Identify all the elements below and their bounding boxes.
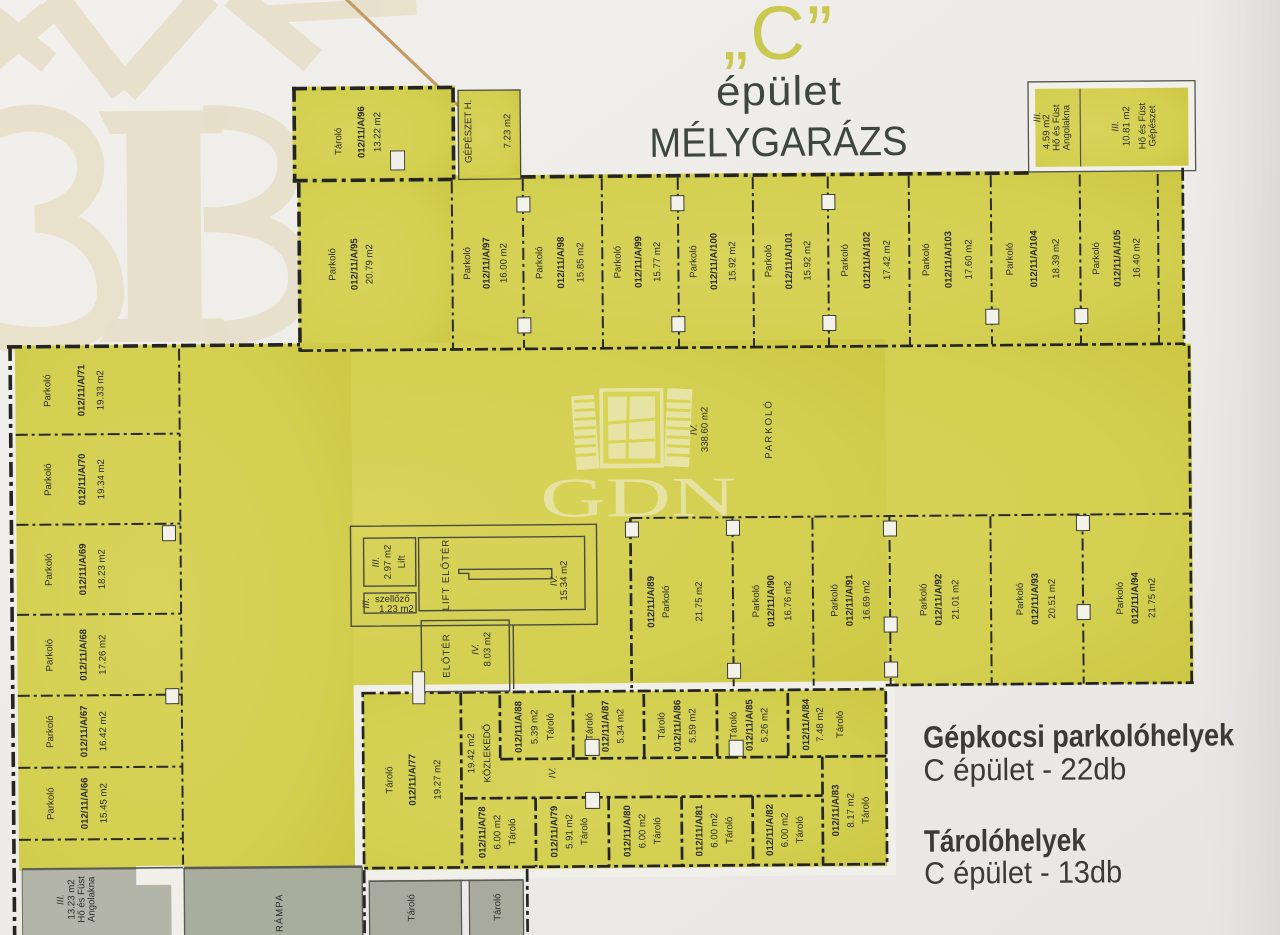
svg-text:18.39 m2: 18.39 m2 xyxy=(1051,239,1062,279)
svg-text:012/11/A/67: 012/11/A/67 xyxy=(79,705,90,757)
svg-text:LIFT ELŐTÉR: LIFT ELŐTÉR xyxy=(441,539,453,611)
svg-text:5.91 m2: 5.91 m2 xyxy=(564,814,575,849)
svg-text:19.42 m2: 19.42 m2 xyxy=(466,733,477,773)
svg-text:012/11/A/103: 012/11/A/103 xyxy=(943,231,954,288)
svg-text:15.34 m2: 15.34 m2 xyxy=(559,561,570,601)
svg-text:21.75 m2: 21.75 m2 xyxy=(1147,578,1158,618)
svg-text:III.: III. xyxy=(361,598,372,609)
svg-text:012/11/A/93: 012/11/A/93 xyxy=(1030,573,1041,625)
svg-text:18.23 m2: 18.23 m2 xyxy=(97,549,108,589)
svg-text:C épület - 22db: C épület - 22db xyxy=(923,751,1126,788)
svg-text:Parkoló: Parkoló xyxy=(612,246,623,279)
svg-text:III.: III. xyxy=(371,557,382,568)
svg-text:épület: épület xyxy=(716,67,842,114)
svg-text:012/11/A/70: 012/11/A/70 xyxy=(77,453,88,505)
svg-text:Parkoló: Parkoló xyxy=(1015,583,1026,616)
svg-text:012/11/A/104: 012/11/A/104 xyxy=(1029,230,1040,288)
svg-text:012/11/A/77: 012/11/A/77 xyxy=(407,754,418,806)
svg-text:012/11/A/71: 012/11/A/71 xyxy=(76,364,87,416)
svg-text:16.69 m2: 16.69 m2 xyxy=(861,580,872,620)
svg-text:Parkoló: Parkoló xyxy=(45,787,56,820)
svg-text:012/11/A/68: 012/11/A/68 xyxy=(78,628,89,680)
svg-text:Parkoló: Parkoló xyxy=(840,244,851,277)
svg-text:012/11/A/88: 012/11/A/88 xyxy=(513,700,524,752)
svg-text:Lift: Lift xyxy=(397,555,408,568)
svg-text:Tároló: Tároló xyxy=(835,711,846,738)
svg-text:012/11/A/98: 012/11/A/98 xyxy=(556,236,567,288)
svg-text:Tároló: Tároló xyxy=(406,894,417,921)
svg-text:Parkoló: Parkoló xyxy=(763,245,774,278)
svg-text:6.00 m2: 6.00 m2 xyxy=(780,812,791,847)
svg-text:012/11/A/84: 012/11/A/84 xyxy=(801,698,812,750)
svg-text:012/11/A/92: 012/11/A/92 xyxy=(933,574,944,626)
svg-text:6.00 m2: 6.00 m2 xyxy=(637,814,648,849)
svg-text:19.34 m2: 19.34 m2 xyxy=(96,459,107,499)
svg-text:6.00 m2: 6.00 m2 xyxy=(709,813,720,848)
svg-text:21.75 m2: 21.75 m2 xyxy=(694,581,705,621)
svg-text:17.26 m2: 17.26 m2 xyxy=(97,635,108,675)
svg-text:012/11/A/66: 012/11/A/66 xyxy=(79,777,90,829)
svg-text:MÉLYGARÁZS: MÉLYGARÁZS xyxy=(649,118,907,166)
svg-text:19.33 m2: 19.33 m2 xyxy=(95,370,106,410)
svg-text:15.92 m2: 15.92 m2 xyxy=(727,241,738,281)
svg-text:17.60 m2: 17.60 m2 xyxy=(964,239,975,279)
svg-text:13.22 m2: 13.22 m2 xyxy=(372,112,383,152)
svg-text:012/11/A/85: 012/11/A/85 xyxy=(744,699,755,751)
svg-text:Tároló: Tároló xyxy=(656,712,667,739)
svg-text:012/11/A/89: 012/11/A/89 xyxy=(646,576,657,628)
svg-text:5.34 m2: 5.34 m2 xyxy=(615,709,626,744)
svg-text:Parkoló: Parkoló xyxy=(829,584,840,617)
svg-text:8.17 m2: 8.17 m2 xyxy=(846,793,857,828)
svg-text:Tároló: Tároló xyxy=(861,797,872,824)
svg-text:20.51 m2: 20.51 m2 xyxy=(1047,579,1058,619)
svg-text:1.23 m2: 1.23 m2 xyxy=(379,604,414,615)
svg-text:Parkoló: Parkoló xyxy=(921,243,932,276)
svg-text:6.00 m2: 6.00 m2 xyxy=(492,815,503,850)
svg-text:Angolakna: Angolakna xyxy=(86,876,97,922)
svg-text:Tároló: Tároló xyxy=(333,128,344,155)
svg-text:IV.: IV. xyxy=(547,767,558,778)
svg-text:Parkoló: Parkoló xyxy=(1005,243,1016,276)
svg-text:012/11/A/78: 012/11/A/78 xyxy=(477,806,488,858)
svg-text:Tároló: Tároló xyxy=(728,712,739,739)
svg-text:C épület - 13db: C épület - 13db xyxy=(924,854,1122,891)
svg-text:17.42 m2: 17.42 m2 xyxy=(882,240,893,280)
svg-text:7.23 m2: 7.23 m2 xyxy=(502,114,513,149)
svg-text:10.81 m2: 10.81 m2 xyxy=(1121,106,1132,146)
svg-text:IV.: IV. xyxy=(470,644,481,655)
svg-text:III.: III. xyxy=(1110,121,1121,132)
svg-text:16.00 m2: 16.00 m2 xyxy=(498,243,509,283)
svg-text:012/11/A/81: 012/11/A/81 xyxy=(694,804,705,856)
svg-text:Tároló: Tároló xyxy=(492,893,503,920)
svg-text:Parkoló: Parkoló xyxy=(661,585,672,618)
svg-text:Tároló: Tároló xyxy=(507,818,518,845)
svg-text:15.77 m2: 15.77 m2 xyxy=(652,242,663,282)
svg-text:5.26 m2: 5.26 m2 xyxy=(759,708,770,743)
svg-text:Tároló: Tároló xyxy=(795,816,806,843)
svg-text:5.39 m2: 5.39 m2 xyxy=(529,709,540,744)
svg-text:012/11/A/86: 012/11/A/86 xyxy=(672,700,683,752)
svg-text:Gépkocsi parkolóhelyek: Gépkocsi parkolóhelyek xyxy=(923,717,1235,754)
svg-text:15.92 m2: 15.92 m2 xyxy=(802,241,813,281)
svg-text:III.: III. xyxy=(55,894,66,905)
svg-text:5.59 m2: 5.59 m2 xyxy=(687,708,698,743)
svg-text:012/11/A/99: 012/11/A/99 xyxy=(633,236,644,288)
svg-text:Parkoló: Parkoló xyxy=(1091,242,1102,275)
svg-text:KÖZLEKEDŐ: KÖZLEKEDŐ xyxy=(482,724,493,783)
svg-text:Tárolóhelyek: Tárolóhelyek xyxy=(924,823,1087,859)
svg-text:012/11/A/83: 012/11/A/83 xyxy=(830,785,841,837)
svg-text:Parkoló: Parkoló xyxy=(751,585,762,618)
svg-text:012/11/A/87: 012/11/A/87 xyxy=(600,700,611,752)
svg-text:012/11/A/100: 012/11/A/100 xyxy=(709,233,720,290)
svg-text:Parkoló: Parkoló xyxy=(42,374,53,407)
svg-text:Parkoló: Parkoló xyxy=(1115,582,1126,615)
svg-text:Parkoló: Parkoló xyxy=(44,553,55,586)
svg-text:15.45 m2: 15.45 m2 xyxy=(98,783,109,823)
svg-text:012/11/A/69: 012/11/A/69 xyxy=(78,543,89,595)
svg-text:Tároló: Tároló xyxy=(584,713,595,740)
svg-text:19.27 m2: 19.27 m2 xyxy=(432,760,443,800)
svg-text:012/11/A/94: 012/11/A/94 xyxy=(1130,572,1141,624)
svg-text:Parkoló: Parkoló xyxy=(43,463,54,496)
svg-text:Parkoló: Parkoló xyxy=(688,245,699,278)
svg-text:16.40 m2: 16.40 m2 xyxy=(1131,238,1142,278)
svg-text:ELŐTÉR: ELŐTÉR xyxy=(441,633,452,677)
svg-text:8.03 m2: 8.03 m2 xyxy=(482,632,493,667)
svg-text:16.42 m2: 16.42 m2 xyxy=(98,711,109,751)
svg-text:Parkoló: Parkoló xyxy=(327,248,338,281)
svg-text:16.76 m2: 16.76 m2 xyxy=(783,581,794,621)
svg-text:012/11/A/102: 012/11/A/102 xyxy=(862,232,873,289)
svg-text:15.85 m2: 15.85 m2 xyxy=(575,242,586,282)
svg-text:PARKOLÓ: PARKOLÓ xyxy=(763,399,774,459)
svg-text:012/11/A/91: 012/11/A/91 xyxy=(844,574,855,626)
svg-text:IV.: IV. xyxy=(689,424,700,435)
svg-text:012/11/A/90: 012/11/A/90 xyxy=(766,575,777,627)
svg-text:012/11/A/82: 012/11/A/82 xyxy=(765,804,776,856)
svg-text:012/11/A/79: 012/11/A/79 xyxy=(549,806,560,858)
svg-text:Angolakna: Angolakna xyxy=(1061,104,1072,150)
svg-text:Parkoló: Parkoló xyxy=(44,639,55,672)
svg-text:Tároló: Tároló xyxy=(579,818,590,845)
svg-text:012/11/A/105: 012/11/A/105 xyxy=(1112,229,1123,287)
svg-text:012/11/A/101: 012/11/A/101 xyxy=(784,232,795,290)
svg-text:Parkoló: Parkoló xyxy=(918,583,929,616)
svg-text:Tároló: Tároló xyxy=(545,713,556,740)
svg-text:2.97 m2: 2.97 m2 xyxy=(383,545,394,580)
svg-text:012/11/A/80: 012/11/A/80 xyxy=(622,805,633,857)
svg-text:Parkoló: Parkoló xyxy=(462,247,473,280)
svg-text:Parkoló: Parkoló xyxy=(534,246,545,279)
svg-text:Tároló: Tároló xyxy=(384,766,395,793)
svg-text:GDN: GDN xyxy=(540,466,736,530)
svg-text:Parkoló: Parkoló xyxy=(45,715,56,748)
svg-text:20.79 m2: 20.79 m2 xyxy=(364,244,375,284)
svg-text:GÉPÉSZET H.: GÉPÉSZET H. xyxy=(463,100,474,163)
svg-text:„C”: „C” xyxy=(722,0,834,76)
svg-text:Tároló: Tároló xyxy=(652,817,663,844)
svg-text:21.01 m2: 21.01 m2 xyxy=(950,579,961,619)
svg-text:338.60 m2: 338.60 m2 xyxy=(700,407,711,452)
svg-text:7.48 m2: 7.48 m2 xyxy=(815,707,826,742)
svg-text:012/11/A/97: 012/11/A/97 xyxy=(481,237,492,289)
svg-text:Tároló: Tároló xyxy=(724,817,735,844)
svg-text:012/11/A/96: 012/11/A/96 xyxy=(356,106,367,158)
svg-text:012/11/A/95: 012/11/A/95 xyxy=(349,238,360,290)
svg-text:RÁMPA: RÁMPA xyxy=(274,894,285,932)
svg-text:Gépészet: Gépészet xyxy=(1147,105,1158,146)
